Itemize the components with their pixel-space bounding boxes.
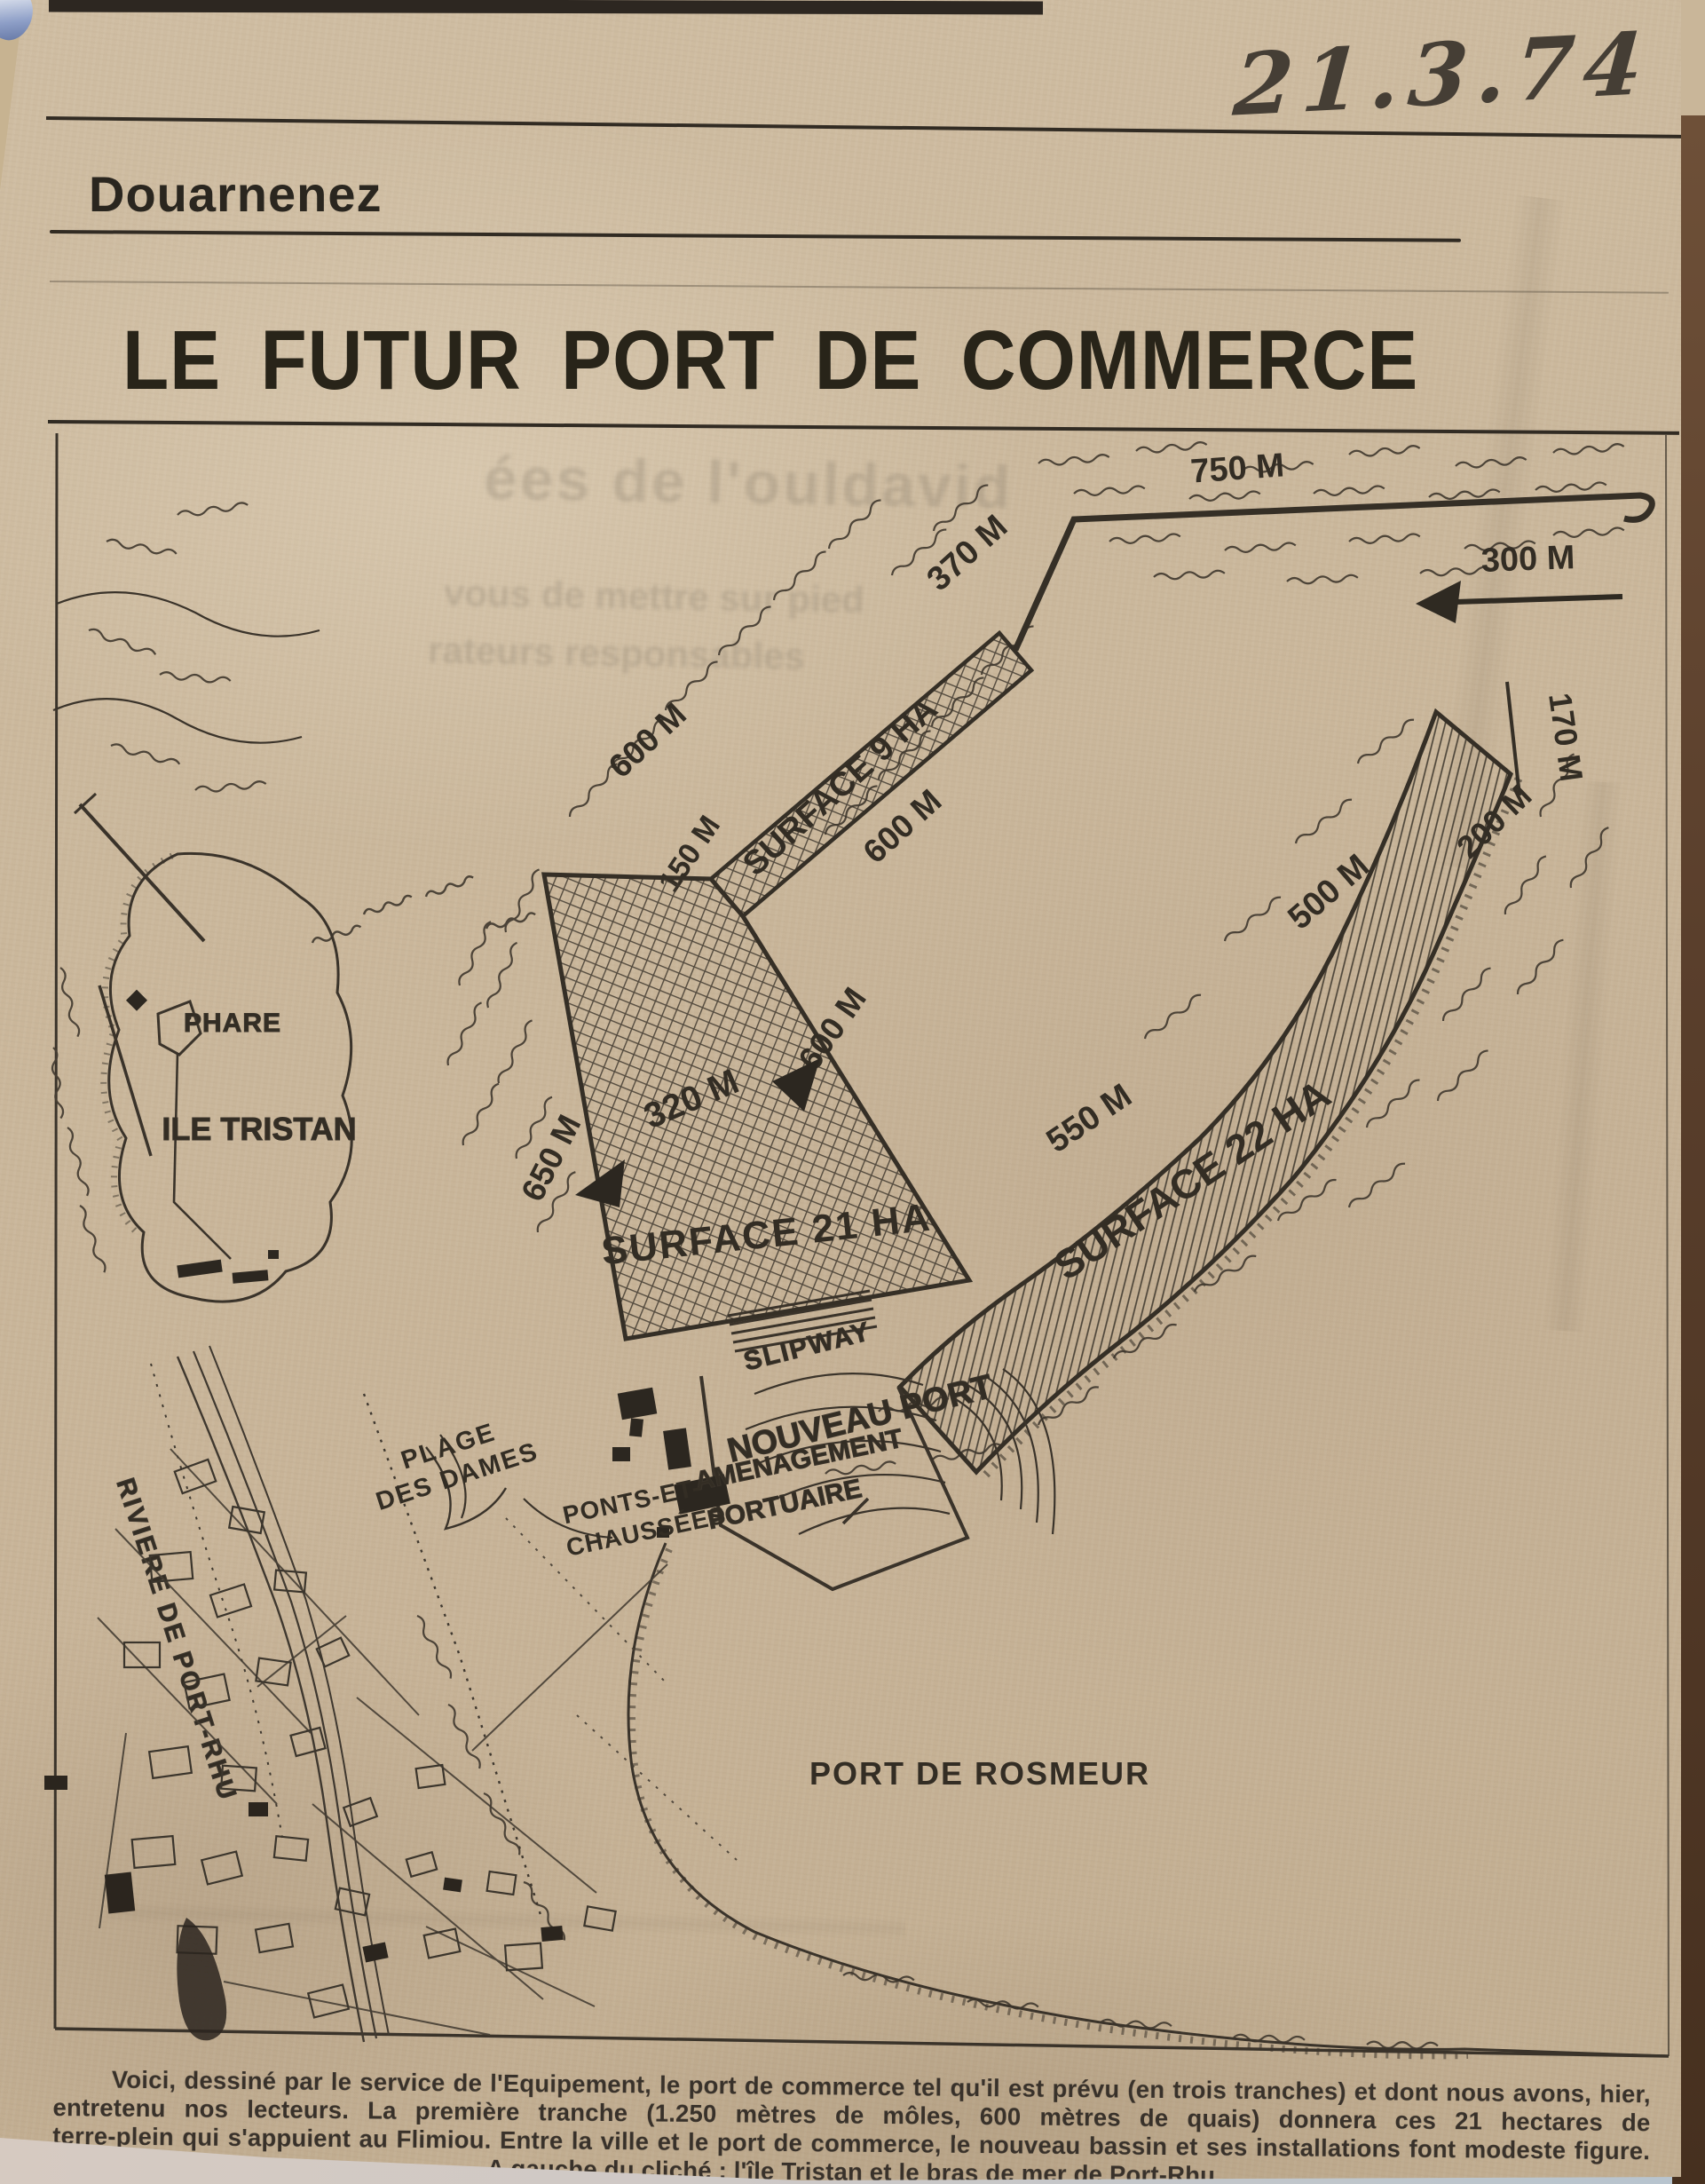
ile-tristan: PHARE ILE TRISTAN xyxy=(53,592,357,1302)
label-750m: 750 M xyxy=(1189,447,1285,490)
label-550m: 550 M xyxy=(1040,1077,1139,1160)
label-surface-9ha: SURFACE 9 HA xyxy=(736,690,944,883)
town-dark-blocks xyxy=(44,1776,564,2040)
photo-of-newspaper-clipping: { "annotations": { "handwritten_date": "… xyxy=(0,0,1705,2184)
label-slipway: SLIPWAY xyxy=(741,1317,874,1376)
coastline xyxy=(628,1543,1669,2056)
terre-plein-21ha: 650 M 320 M 600 M SURFACE 21 HA xyxy=(514,874,969,1339)
arrow-left-icon xyxy=(1416,581,1461,623)
label-600m-nw: 600 M xyxy=(602,696,693,785)
label-port-de-rosmeur: PORT DE ROSMEUR xyxy=(809,1755,1150,1792)
label-650m: 650 M xyxy=(514,1109,588,1207)
label-phare: PHARE xyxy=(184,1009,281,1038)
pier-9ha: SURFACE 9 HA 600 M 150 M 600 M xyxy=(602,633,1031,916)
label-ile-tristan: ILE TRISTAN xyxy=(162,1111,356,1147)
horizontal-rule-faint xyxy=(50,281,1669,294)
label-370m: 370 M xyxy=(920,508,1015,598)
port-map: 750 M 370 M 300 M SURFACE 9 HA 600 M 150… xyxy=(44,417,1677,2086)
newspaper-clipping: 21.3.74 Douarnenez LE FUTUR PORT DE COMM… xyxy=(0,0,1681,2184)
scale-arrow-300m: 300 M xyxy=(1416,539,1622,623)
section-title: Douarnenez xyxy=(89,165,383,223)
article-headline: LE FUTUR PORT DE COMMERCE xyxy=(122,313,1418,409)
label-170m: 170 M xyxy=(1542,691,1591,784)
adjacent-clipping-edge xyxy=(49,0,1043,14)
east-breakwater-22ha: 170 M 200 M 500 M 550 M SURFACE 22 HA xyxy=(900,682,1591,1476)
horizontal-rule-masthead xyxy=(50,230,1461,242)
label-300m: 300 M xyxy=(1480,539,1575,580)
handwritten-date: 21.3.74 xyxy=(1230,14,1627,136)
